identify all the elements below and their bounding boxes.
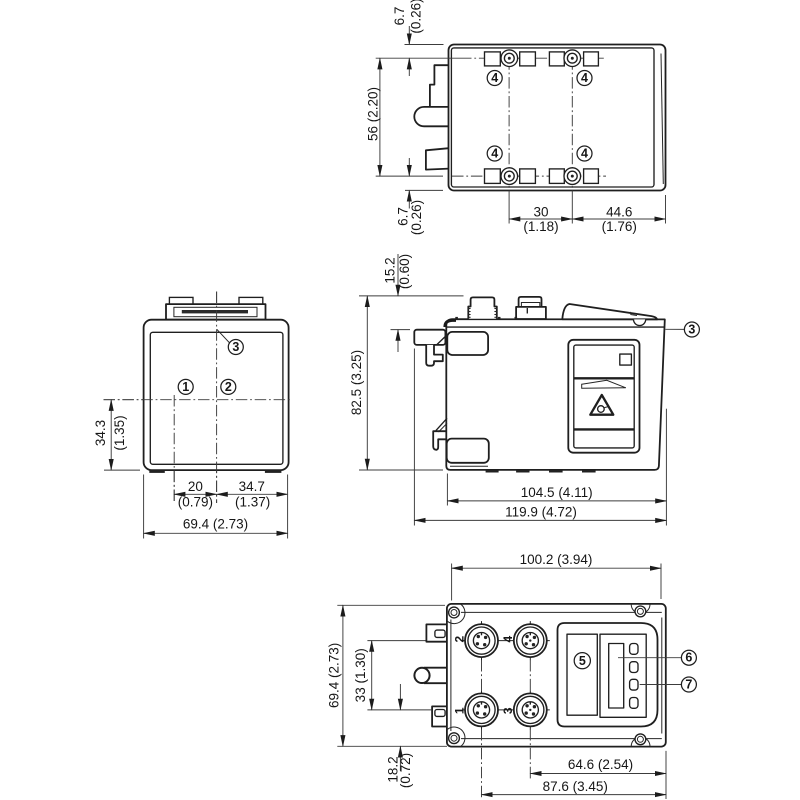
svg-text:87.6 (3.45): 87.6 (3.45) <box>543 779 608 794</box>
svg-text:69.4 (2.73): 69.4 (2.73) <box>183 517 248 532</box>
svg-text:(0.26): (0.26) <box>409 0 424 34</box>
svg-text:3: 3 <box>232 340 239 354</box>
svg-text:15.2: 15.2 <box>383 257 398 283</box>
svg-text:(1.18): (1.18) <box>523 219 558 234</box>
svg-text:(0.60): (0.60) <box>397 254 412 289</box>
svg-text:(0.26): (0.26) <box>409 200 424 235</box>
svg-text:2: 2 <box>452 636 466 643</box>
svg-text:1: 1 <box>452 707 466 714</box>
svg-text:7: 7 <box>685 678 692 692</box>
svg-text:100.2 (3.94): 100.2 (3.94) <box>520 552 593 567</box>
svg-text:20: 20 <box>188 479 203 494</box>
svg-text:4: 4 <box>581 147 588 161</box>
svg-text:34.7: 34.7 <box>239 479 265 494</box>
svg-text:119.9 (4.72): 119.9 (4.72) <box>505 505 577 520</box>
svg-text:1: 1 <box>182 380 189 394</box>
svg-text:(0.72): (0.72) <box>398 753 413 788</box>
svg-text:69.4 (2.73): 69.4 (2.73) <box>327 643 342 708</box>
svg-text:64.6 (2.54): 64.6 (2.54) <box>568 757 633 772</box>
svg-text:4: 4 <box>501 636 515 643</box>
svg-text:(1.37): (1.37) <box>235 495 270 510</box>
svg-text:6: 6 <box>685 651 692 665</box>
svg-text:4: 4 <box>581 71 588 85</box>
svg-text:3: 3 <box>501 707 515 714</box>
svg-text:6.7: 6.7 <box>392 7 407 26</box>
svg-text:82.5 (3.25): 82.5 (3.25) <box>349 350 364 415</box>
svg-text:2: 2 <box>225 380 232 394</box>
svg-text:(0.79): (0.79) <box>178 495 213 510</box>
svg-text:104.5 (4.11): 104.5 (4.11) <box>521 485 593 500</box>
svg-text:30: 30 <box>533 205 548 220</box>
svg-text:4: 4 <box>491 147 498 161</box>
svg-text:5: 5 <box>579 654 586 668</box>
svg-text:56 (2.20): 56 (2.20) <box>366 87 381 141</box>
svg-text:3: 3 <box>688 323 695 337</box>
svg-text:44.6: 44.6 <box>606 205 632 220</box>
svg-text:4: 4 <box>491 71 498 85</box>
svg-text:34.3: 34.3 <box>93 420 108 446</box>
svg-text:(1.76): (1.76) <box>602 219 637 234</box>
svg-text:33 (1.30): 33 (1.30) <box>353 648 368 702</box>
svg-text:(1.35): (1.35) <box>112 415 127 450</box>
